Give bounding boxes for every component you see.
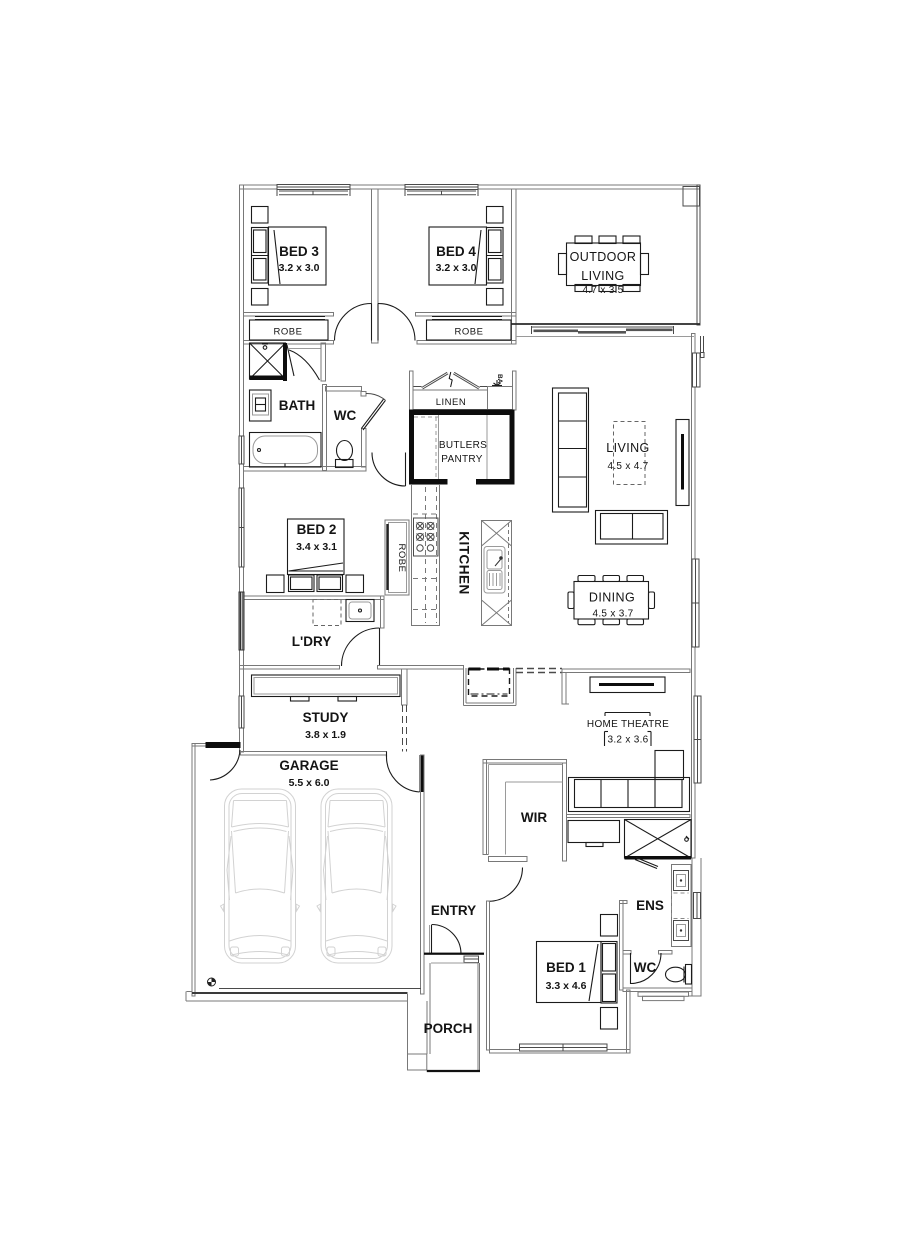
svg-text:4.5 x 3.7: 4.5 x 3.7 — [592, 609, 633, 620]
svg-text:LIVING: LIVING — [606, 441, 649, 455]
svg-text:LIVING: LIVING — [581, 269, 624, 283]
svg-text:LINEN: LINEN — [436, 397, 466, 408]
svg-text:3.2 x 3.6: 3.2 x 3.6 — [607, 735, 648, 746]
svg-text:ROBE: ROBE — [396, 544, 407, 573]
svg-text:HOME THEATRE: HOME THEATRE — [587, 719, 669, 730]
svg-text:BED 2: BED 2 — [297, 522, 337, 537]
svg-text:KITCHEN: KITCHEN — [457, 531, 472, 595]
svg-text:OUTDOOR: OUTDOOR — [570, 250, 637, 264]
svg-text:5.5 x 6.0: 5.5 x 6.0 — [289, 777, 330, 789]
svg-text:4.5 x 4.7: 4.5 x 4.7 — [607, 461, 648, 472]
svg-text:WC: WC — [334, 408, 357, 423]
svg-text:ENS: ENS — [636, 898, 664, 913]
svg-text:DINING: DINING — [589, 591, 635, 605]
svg-text:PORCH: PORCH — [424, 1021, 473, 1036]
svg-text:BUTLERS: BUTLERS — [439, 440, 487, 451]
svg-text:BATH: BATH — [279, 398, 316, 413]
svg-text:WIR: WIR — [521, 810, 547, 825]
svg-text:PANTRY: PANTRY — [441, 454, 482, 465]
svg-text:ROBE: ROBE — [455, 327, 484, 338]
svg-text:L'DRY: L'DRY — [292, 634, 331, 649]
svg-text:3.3 x 4.6: 3.3 x 4.6 — [546, 980, 587, 992]
svg-text:ENTRY: ENTRY — [431, 903, 476, 918]
svg-text:GARAGE: GARAGE — [279, 758, 338, 773]
svg-text:3.2 x 3.0: 3.2 x 3.0 — [436, 262, 477, 274]
svg-text:WC: WC — [634, 960, 657, 975]
svg-text:BED 1: BED 1 — [546, 960, 586, 975]
svg-text:STUDY: STUDY — [303, 710, 349, 725]
svg-text:4.7 x 3.5: 4.7 x 3.5 — [582, 285, 623, 296]
svg-text:3.8 x 1.9: 3.8 x 1.9 — [305, 729, 346, 741]
svg-text:3.4 x 3.1: 3.4 x 3.1 — [296, 541, 337, 553]
svg-text:ROBE: ROBE — [274, 327, 303, 338]
svg-text:BED 3: BED 3 — [279, 244, 319, 259]
svg-text:BED 4: BED 4 — [436, 244, 476, 259]
svg-text:3.2 x 3.0: 3.2 x 3.0 — [279, 262, 320, 274]
